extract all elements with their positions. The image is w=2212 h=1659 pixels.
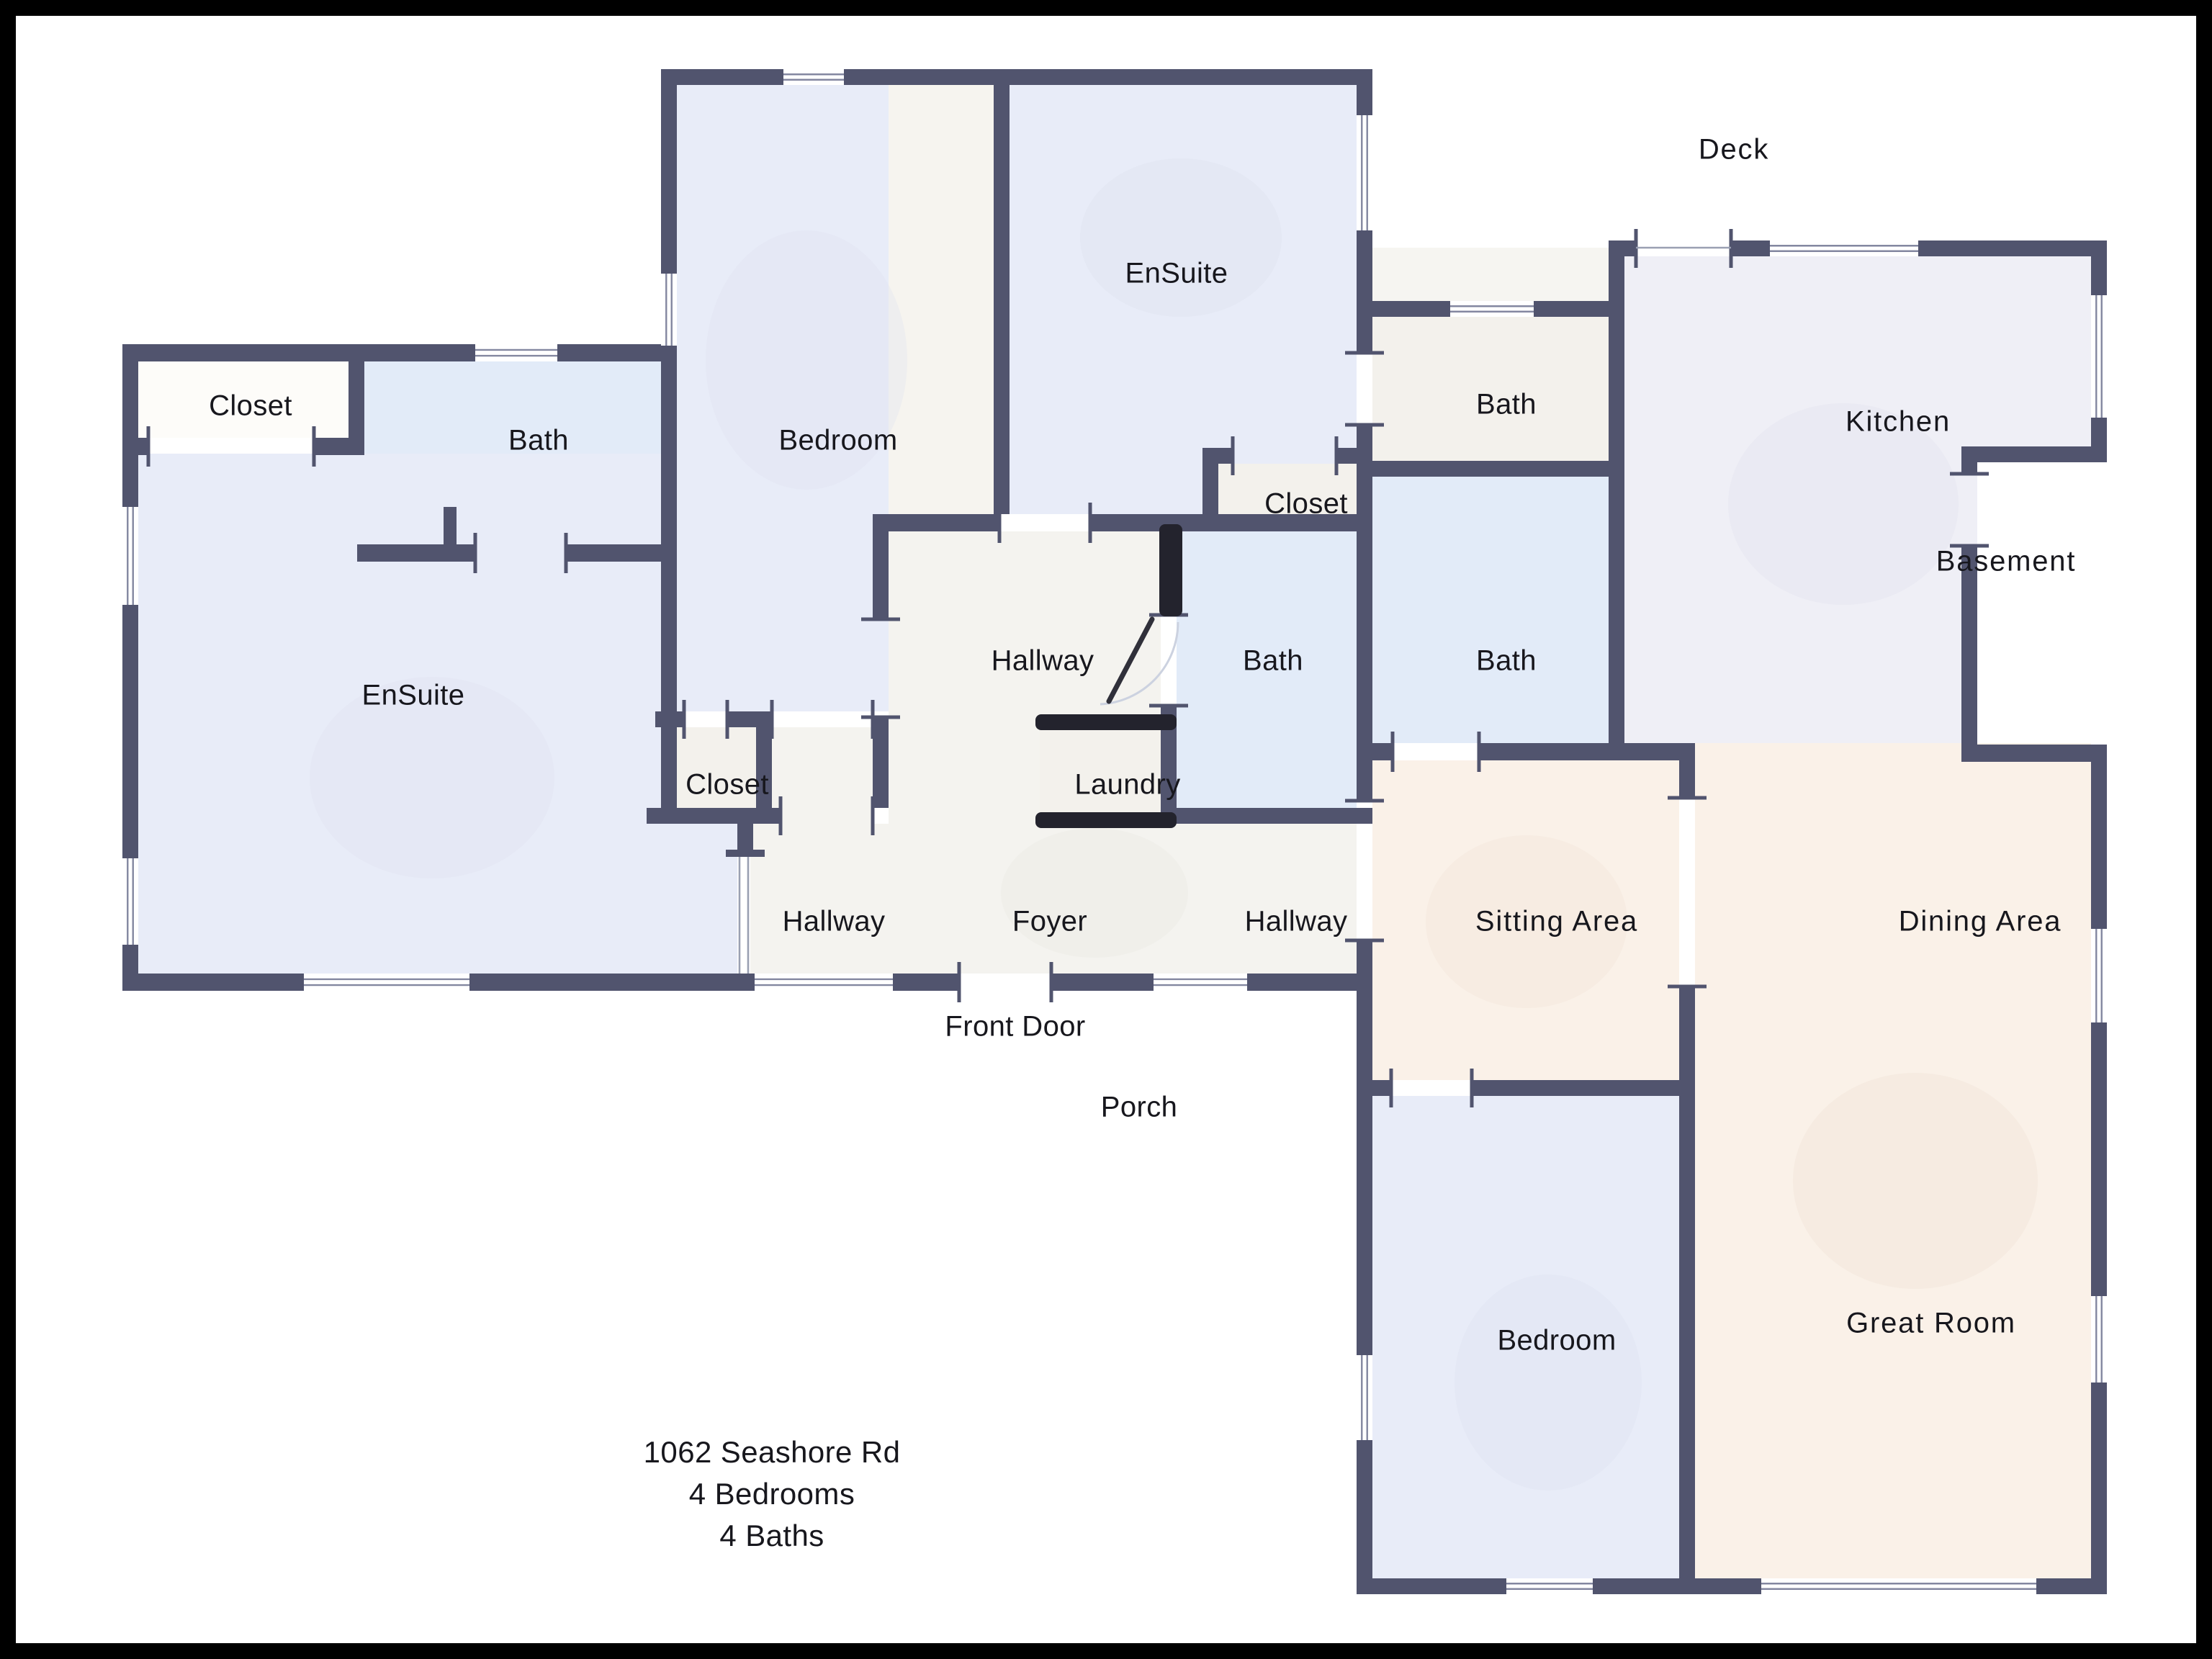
room-label-kitchen: Kitchen: [1845, 406, 1951, 438]
wall-segment: [1357, 760, 1372, 801]
wall-segment: [1679, 760, 1695, 798]
room-label-closet-small: Closet: [685, 769, 769, 801]
room-label-basement: Basement: [1936, 546, 2077, 577]
wall-segment: [1051, 974, 1154, 991]
wall-segment: [655, 711, 684, 727]
room-label-hallway-bottom-right: Hallway: [1245, 906, 1348, 938]
room-label-porch: Porch: [1101, 1092, 1178, 1123]
room-label-sitting-area: Sitting Area: [1475, 906, 1638, 938]
wall-segment: [444, 507, 457, 544]
room-label-deck: Deck: [1699, 134, 1769, 166]
sketch-wall-mark: [1159, 524, 1182, 616]
wall-segment: [1679, 986, 1695, 1578]
wall-segment: [893, 974, 959, 991]
wall-segment: [873, 717, 889, 808]
window: [122, 858, 138, 945]
room-fill-bath-right: [1372, 477, 1609, 743]
wall-segment: [2091, 745, 2107, 1594]
room-fill-passage: [772, 727, 873, 824]
wall-segment: [2036, 1578, 2107, 1594]
room-label-closet-top-left: Closet: [209, 390, 292, 422]
room-label-closet-mid-right: Closet: [1264, 488, 1348, 520]
floor-smudge: [1455, 1274, 1642, 1491]
wall-segment: [873, 531, 889, 619]
wall-segment: [873, 514, 999, 531]
wall-segment: [1961, 446, 2107, 462]
room-label-ensuite-top: EnSuite: [1125, 258, 1228, 289]
room-fill-ensuite-left-c: [661, 824, 737, 974]
window: [475, 344, 557, 361]
room-fill-basement-cut: [1977, 462, 2091, 745]
wall-segment: [1357, 1080, 1391, 1096]
wall-segment: [1090, 514, 1202, 531]
address-block: 1062 Seashore Rd4 Bedrooms4 Baths: [644, 1435, 901, 1552]
room-fill-bedroom-strip: [889, 85, 994, 514]
window: [2091, 1296, 2107, 1382]
wall-segment: [1372, 301, 1450, 317]
window: [1154, 974, 1247, 991]
room-label-bedroom-top: Bedroom: [778, 425, 897, 457]
window: [2091, 295, 2107, 418]
window: [1761, 1578, 2036, 1594]
wall-segment: [1472, 1080, 1695, 1096]
wall-segment: [647, 808, 781, 824]
room-label-bath-middle: Bath: [1243, 645, 1303, 677]
room-label-bath-right: Bath: [1476, 645, 1537, 677]
wall-segment: [1357, 425, 1372, 760]
room-label-hallway-bottom-left: Hallway: [783, 906, 886, 938]
window: [1770, 240, 1918, 256]
wall-segment: [1202, 448, 1218, 531]
room-label-bath-left: Bath: [508, 425, 569, 457]
sketch-wall-mark: [1035, 714, 1177, 730]
room-label-bath-top-right: Bath: [1476, 389, 1537, 421]
room-label-bedroom-bottom: Bedroom: [1497, 1325, 1616, 1357]
wall-segment: [994, 85, 1010, 514]
window: [1357, 1355, 1372, 1440]
wall-segment: [1357, 305, 1372, 353]
room-label-great-room: Great Room: [1846, 1308, 2016, 1339]
wall-segment: [1479, 743, 1695, 760]
window: [1506, 1578, 1593, 1594]
wall-segment: [1357, 743, 1393, 760]
wall-segment: [726, 850, 765, 857]
room-label-front-door: Front Door: [945, 1011, 1085, 1043]
window: [661, 274, 677, 346]
wall-segment: [1918, 240, 2107, 256]
wall-segment: [661, 69, 1372, 85]
room-label-laundry: Laundry: [1074, 769, 1180, 801]
wall-segment: [566, 544, 677, 562]
wall-segment: [1609, 240, 1624, 301]
wall-segment: [1357, 940, 1372, 1594]
room-fill-ensuite-left-b: [349, 454, 364, 544]
window: [755, 974, 893, 991]
wall-segment: [1357, 1578, 1506, 1594]
wall-segment: [1609, 301, 1624, 743]
floor-plan-page: DeckEnSuiteBathKitchenClosetBathBedroomC…: [0, 0, 2212, 1659]
window: [1357, 115, 1372, 230]
address-line-2: 4 Bedrooms: [689, 1477, 855, 1511]
window: [2091, 929, 2107, 1022]
room-label-ensuite-left: EnSuite: [362, 680, 465, 711]
wall-segment: [1247, 974, 1372, 991]
wall-segment: [349, 344, 364, 455]
wall-segment: [1372, 461, 1624, 477]
window: [122, 507, 138, 605]
wall-segment: [122, 438, 148, 455]
wall-segment: [469, 974, 755, 991]
wall-segment: [1161, 808, 1372, 824]
address-line-3: 4 Baths: [719, 1519, 824, 1552]
wall-segment: [661, 69, 677, 824]
wall-segment: [756, 711, 772, 824]
floor-smudge: [1001, 828, 1188, 958]
room-label-hallway-middle: Hallway: [992, 645, 1094, 677]
wall-segment: [122, 344, 677, 361]
window: [1450, 301, 1534, 317]
floor-smudge: [1080, 158, 1282, 317]
room-label-dining-area: Dining Area: [1899, 906, 2062, 938]
wall-segment: [357, 544, 475, 562]
wall-segment: [1593, 1578, 1761, 1594]
wall-segment: [1731, 240, 1770, 256]
floor-plan: DeckEnSuiteBathKitchenClosetBathBedroomC…: [0, 0, 2212, 1659]
window: [783, 69, 844, 85]
sketch-wall-mark: [1035, 812, 1177, 828]
wall-segment: [1961, 446, 1977, 474]
room-label-foyer: Foyer: [1012, 906, 1087, 938]
wall-segment: [122, 974, 304, 991]
floor-smudge: [1793, 1073, 2038, 1289]
window: [304, 974, 469, 991]
address-line-1: 1062 Seashore Rd: [644, 1435, 901, 1469]
wall-segment: [737, 824, 753, 853]
wall-segment: [1961, 745, 2107, 762]
room-fill-deck-floor: [1364, 248, 1609, 301]
